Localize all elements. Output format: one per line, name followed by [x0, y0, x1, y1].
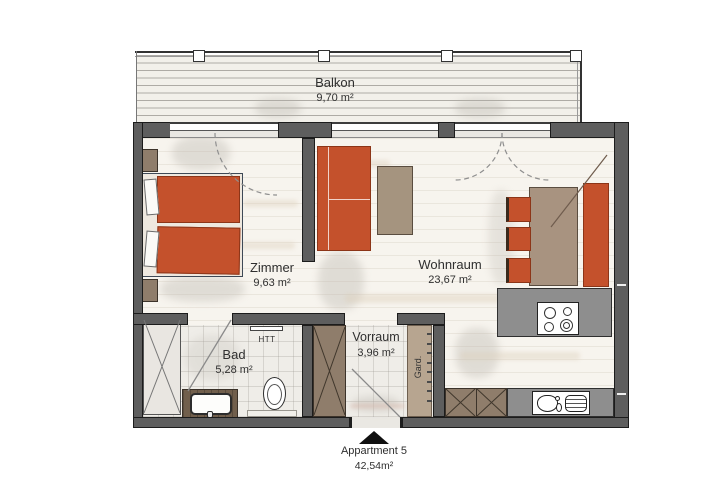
wall	[614, 122, 629, 428]
room-label-wohnraum: Wohnraum 23,67 m²	[395, 257, 505, 287]
floor-streak	[345, 294, 505, 303]
bed-duvet	[157, 176, 240, 223]
apartment-footer: Appartment 5 42,54m²	[314, 444, 434, 473]
wall	[133, 313, 188, 325]
balcony-railing-left	[136, 51, 137, 122]
coffee-table	[377, 166, 413, 235]
shower	[143, 318, 181, 415]
bad-name: Bad	[199, 347, 269, 362]
balcony-name: Balkon	[270, 75, 400, 90]
burner	[560, 319, 573, 332]
gard-text: Gard.	[413, 356, 423, 379]
railing-post	[570, 50, 582, 62]
bad-area: 5,28 m²	[199, 363, 269, 377]
wall	[133, 122, 143, 428]
coat-rack-label: Gard.	[413, 347, 425, 387]
balcony-area: 9,70 m²	[270, 91, 400, 105]
toilet-seat	[267, 384, 282, 405]
wall	[302, 325, 313, 417]
zimmer-area: 9,63 m²	[222, 276, 322, 290]
window-glazing	[170, 130, 278, 131]
floor-streak	[350, 404, 405, 408]
wall	[232, 313, 345, 325]
wall	[302, 138, 315, 262]
sofa-cushion-split	[329, 199, 370, 200]
balcony-label: Balkon 9,70 m²	[270, 75, 400, 105]
wall	[397, 313, 445, 325]
sink-unit	[532, 391, 590, 415]
vorraum-area: 3,96 m²	[331, 346, 421, 360]
coat-hook	[427, 352, 432, 354]
room-label-vorraum: Vorraum 3,96 m²	[331, 330, 421, 360]
entrance-threshold	[350, 417, 402, 428]
base-cabinets	[445, 388, 507, 417]
wohnraum-name: Wohnraum	[395, 257, 505, 272]
wall	[278, 122, 332, 138]
burner	[563, 307, 572, 316]
coat-hook	[427, 362, 432, 364]
entrance-marker	[359, 431, 389, 444]
coat-hook	[427, 371, 432, 373]
sofa	[317, 146, 371, 251]
shadow	[172, 136, 230, 170]
burner	[544, 307, 556, 319]
sink-drainer	[565, 395, 587, 412]
wall-tick	[617, 284, 626, 286]
towel-radiator	[250, 326, 283, 331]
toilet-pedestal	[247, 410, 297, 417]
dining-bench	[583, 183, 609, 287]
coat-hook	[427, 390, 432, 392]
window	[170, 122, 278, 138]
cabinet-divider	[476, 389, 477, 416]
sink-tap	[555, 396, 560, 401]
railing-post	[441, 50, 453, 62]
floor-streak	[460, 352, 580, 360]
wall	[402, 417, 629, 428]
wall	[438, 122, 455, 138]
room-label-zimmer: Zimmer 9,63 m²	[222, 260, 322, 290]
wall	[133, 417, 350, 428]
sofa-backrest	[318, 147, 329, 250]
burner	[544, 322, 554, 332]
soap-dish	[556, 403, 562, 412]
wall-tick	[617, 393, 626, 395]
coat-hook	[427, 343, 432, 345]
vorraum-name: Vorraum	[331, 330, 421, 345]
floor-plan: Balkon 9,70 m² Zimmer 9,63 m² Wohnraum 2…	[0, 0, 720, 490]
railing-post	[318, 50, 330, 62]
coat-hook	[427, 333, 432, 335]
htt-text: HTT	[248, 332, 286, 347]
wall	[433, 325, 445, 417]
window-glazing	[332, 130, 438, 131]
balcony-door	[455, 122, 550, 138]
dining-chair	[506, 227, 531, 251]
towel-radiator-label: HTT	[248, 332, 286, 347]
room-label-bad: Bad 5,28 m²	[199, 347, 269, 377]
shadow	[455, 98, 505, 118]
dining-chair	[506, 258, 531, 283]
nightstand	[142, 149, 158, 172]
zimmer-name: Zimmer	[222, 260, 322, 275]
floor-streak	[243, 200, 298, 207]
dining-table	[529, 187, 578, 286]
window-glazing	[455, 130, 550, 131]
nightstand	[142, 279, 158, 302]
dining-chair	[506, 197, 531, 222]
wohnraum-area: 23,67 m²	[395, 273, 505, 287]
burner-inner-ring	[563, 322, 570, 329]
window	[332, 122, 438, 138]
coat-hook	[427, 400, 432, 402]
coat-hook	[427, 381, 432, 383]
railing-post	[193, 50, 205, 62]
apartment-total-area: 42,54m²	[314, 459, 434, 473]
apartment-name: Appartment 5	[314, 444, 434, 459]
cooktop	[537, 302, 579, 335]
